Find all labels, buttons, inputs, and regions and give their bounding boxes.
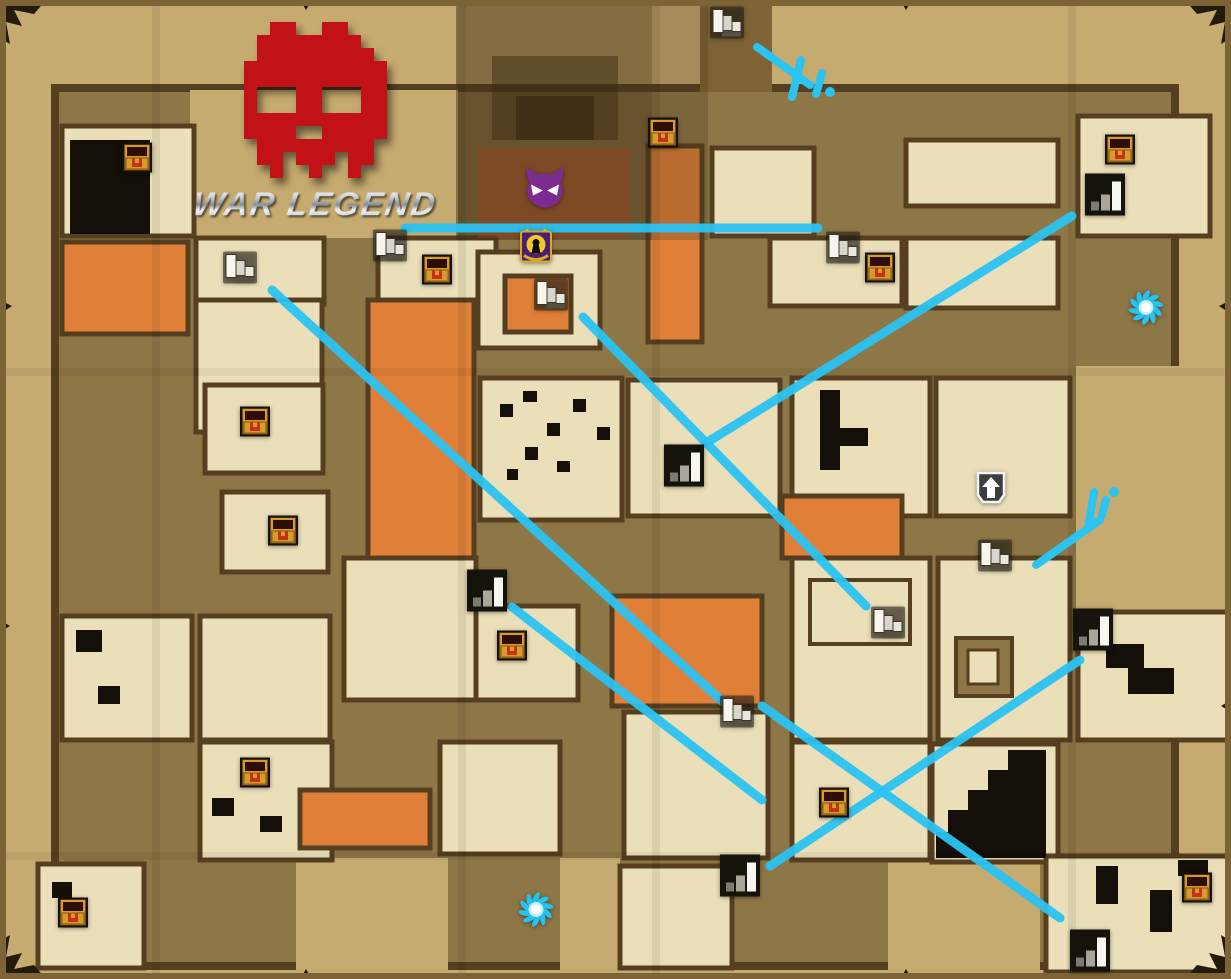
war-legend-dungeon-map[interactable]: WAR LEGEND — [0, 0, 1231, 979]
dungeon-map-base — [0, 0, 1231, 979]
detail-room — [968, 650, 998, 684]
